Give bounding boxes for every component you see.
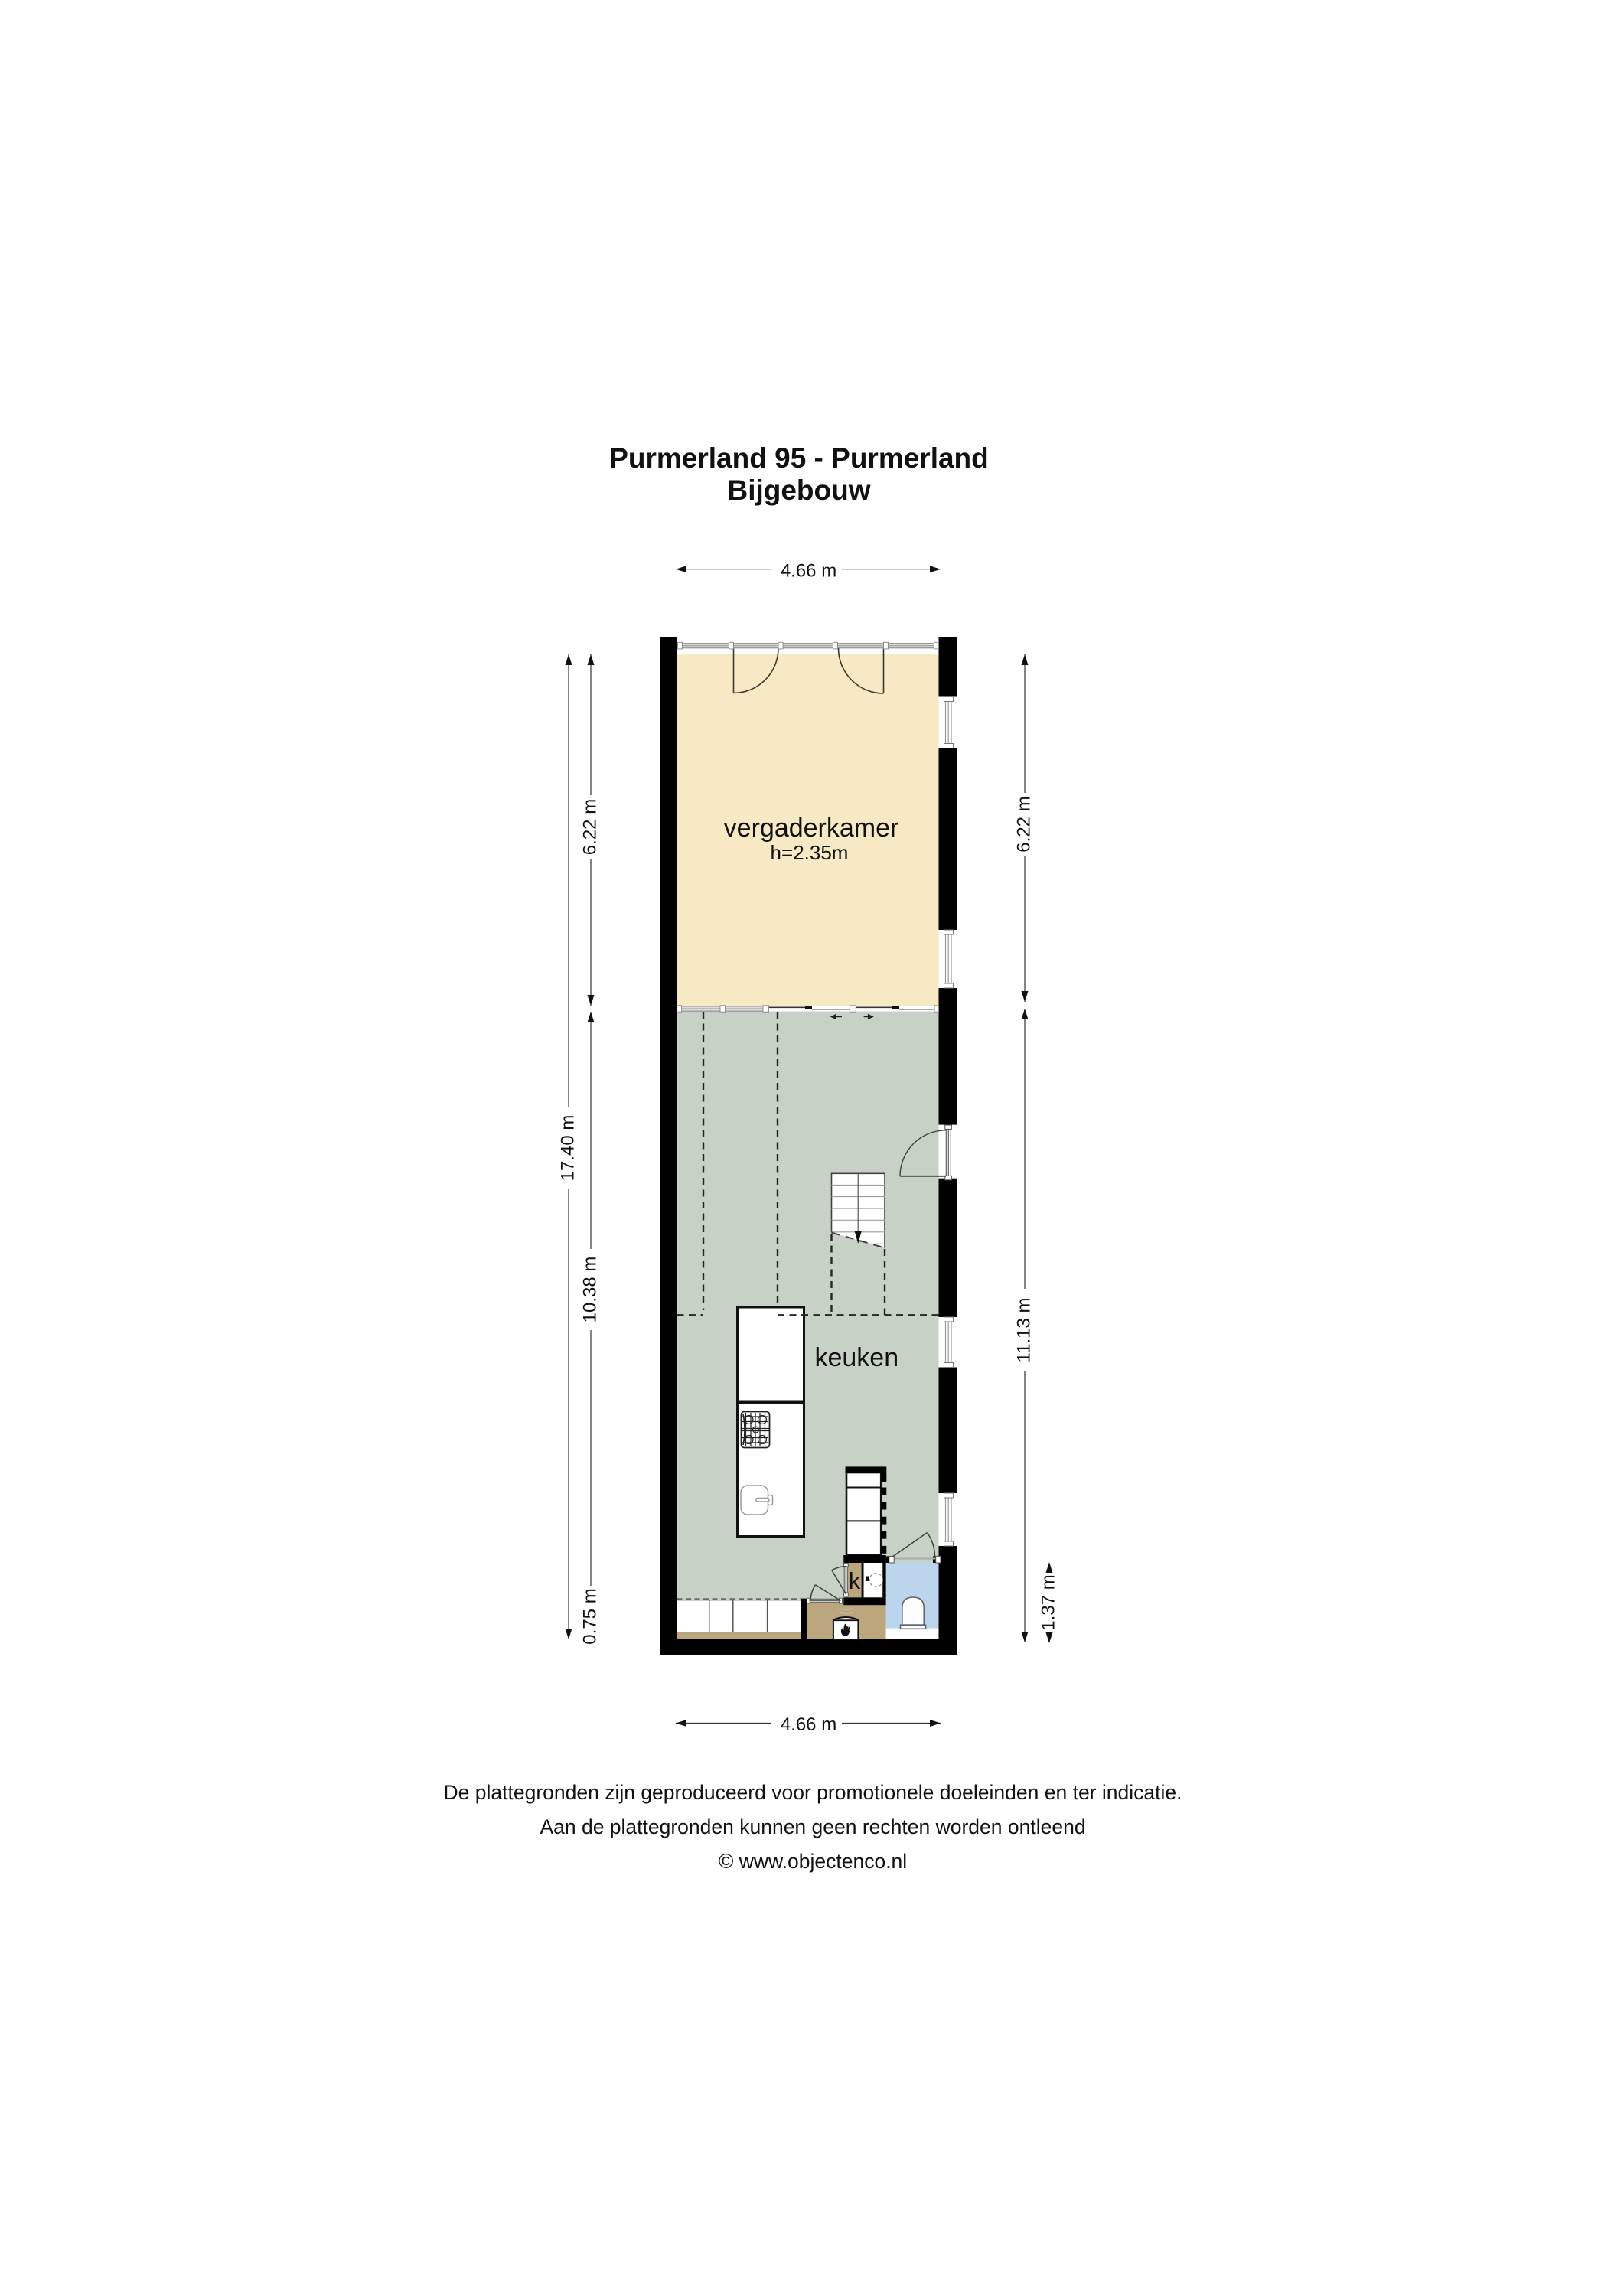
svg-text:17.40 m: 17.40 m — [557, 1115, 578, 1182]
svg-text:4.66 m: 4.66 m — [781, 1714, 836, 1735]
svg-text:h=2.35m: h=2.35m — [771, 841, 849, 864]
svg-text:6.22 m: 6.22 m — [579, 799, 600, 855]
svg-text:10.38 m: 10.38 m — [579, 1257, 600, 1323]
svg-text:6.22 m: 6.22 m — [1013, 796, 1034, 852]
svg-text:0.75 m: 0.75 m — [579, 1588, 600, 1644]
svg-text:11.13 m: 11.13 m — [1013, 1298, 1034, 1363]
svg-text:1.37 m: 1.37 m — [1038, 1574, 1058, 1630]
svg-text:keuken: keuken — [814, 1343, 898, 1372]
svg-text:Purmerland 95 - Purmerland: Purmerland 95 - Purmerland — [609, 442, 989, 474]
svg-text:k: k — [849, 1567, 861, 1594]
svg-text:© www.objectenco.nl: © www.objectenco.nl — [719, 1850, 907, 1873]
svg-text:4.66 m: 4.66 m — [781, 561, 836, 582]
svg-text:Bijgebouw: Bijgebouw — [727, 475, 870, 506]
svg-text:Aan de plattegronden kunnen ge: Aan de plattegronden kunnen geen rechten… — [540, 1815, 1085, 1838]
svg-text:De plattegronden zijn geproduc: De plattegronden zijn geproduceerd voor … — [444, 1781, 1182, 1804]
svg-text:vergaderkamer: vergaderkamer — [724, 814, 899, 843]
